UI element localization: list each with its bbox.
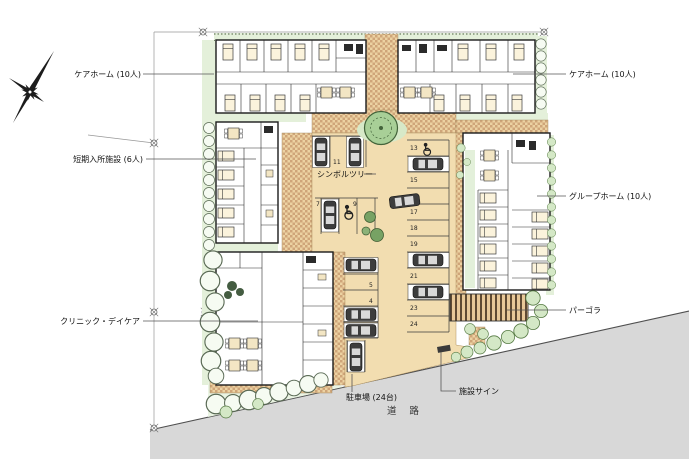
svg-text:18: 18 (410, 225, 418, 232)
svg-text:17: 17 (410, 209, 418, 216)
road-label: 道 路 (387, 405, 424, 417)
car-icon (349, 138, 361, 166)
car-icon (413, 158, 443, 170)
label-pergola: パーゴラ (569, 305, 601, 315)
svg-text:21: 21 (410, 273, 418, 280)
compass-rose-icon (9, 51, 54, 123)
svg-text:7: 7 (316, 201, 320, 208)
building-short-stay (216, 122, 278, 243)
label-short-stay: 短期入所施設 (6人) (73, 154, 143, 164)
site-plan-drawing: 道 路 (0, 0, 689, 459)
label-parking: 駐車場 (24台) (346, 392, 397, 402)
car-icon (346, 325, 376, 337)
label-group-home: グループホーム (10人) (569, 191, 651, 201)
car-icon (324, 201, 336, 229)
car-icon (315, 138, 327, 166)
label-clinic-daycare: クリニック・デイケア (60, 316, 140, 326)
car-icon (346, 259, 376, 271)
svg-text:13: 13 (410, 145, 418, 152)
car-icon (413, 286, 443, 298)
building-clinic-daycare (216, 252, 333, 385)
pergola-structure (450, 294, 528, 321)
svg-text:4: 4 (369, 298, 373, 305)
building-care-home-right (398, 40, 535, 113)
car-icon (346, 309, 376, 321)
svg-text:24: 24 (410, 321, 418, 328)
car-icon (413, 254, 443, 266)
label-symbol-tree: シンボルツリー (317, 170, 373, 179)
building-group-home (463, 133, 550, 290)
svg-text:11: 11 (333, 159, 341, 166)
svg-text:5: 5 (369, 282, 373, 289)
svg-text:19: 19 (410, 241, 418, 248)
site-plan-svg: 道 路 (0, 0, 689, 459)
label-care-home-left: ケアホーム (10人) (74, 70, 141, 79)
label-care-home-right: ケアホーム (10人) (569, 70, 636, 79)
building-care-home-left (216, 40, 366, 113)
svg-text:15: 15 (410, 177, 418, 184)
svg-text:23: 23 (410, 305, 418, 312)
label-facility-sign: 施設サイン (459, 386, 499, 396)
svg-text:9: 9 (353, 201, 357, 208)
car-icon (350, 343, 362, 371)
